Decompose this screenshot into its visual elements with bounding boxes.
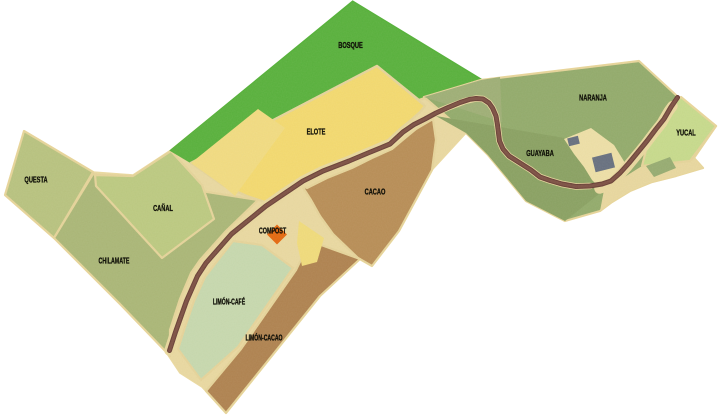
svg-text:ELOTE: ELOTE — [307, 126, 326, 137]
svg-text:YUCAL: YUCAL — [676, 127, 696, 138]
svg-text:LIMÓN-CACAO: LIMÓN-CACAO — [245, 332, 282, 343]
svg-text:CACAO: CACAO — [365, 186, 386, 197]
svg-text:CAÑAL: CAÑAL — [153, 203, 173, 214]
svg-text:COMPOST: COMPOST — [259, 228, 287, 236]
svg-text:BOSQUE: BOSQUE — [338, 40, 363, 51]
svg-text:LIMÓN-CAFÉ: LIMÓN-CAFÉ — [213, 296, 246, 307]
svg-text:NARANJA: NARANJA — [579, 92, 607, 103]
svg-text:GUAYABA: GUAYABA — [526, 148, 554, 159]
svg-text:CHILAMATE: CHILAMATE — [99, 256, 130, 266]
svg-text:QUESTA: QUESTA — [24, 174, 48, 185]
